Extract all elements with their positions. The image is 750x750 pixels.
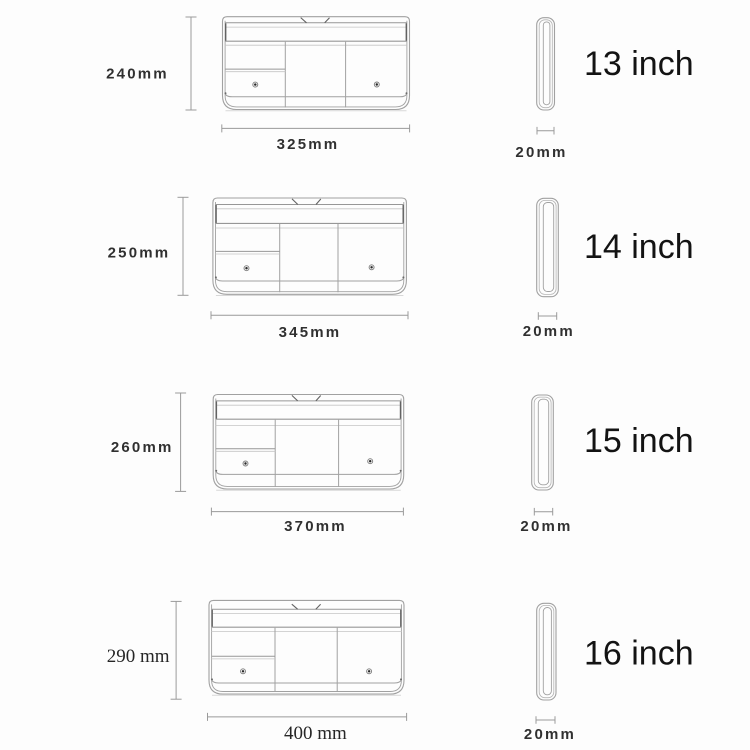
- svg-text:15 inch: 15 inch: [584, 422, 694, 460]
- svg-text:16 inch: 16 inch: [584, 635, 694, 673]
- svg-text:20mm: 20mm: [520, 518, 572, 535]
- svg-text:13 inch: 13 inch: [584, 45, 694, 83]
- svg-text:14 inch: 14 inch: [584, 228, 694, 266]
- svg-text:400 mm: 400 mm: [284, 723, 347, 744]
- svg-text:345mm: 345mm: [279, 324, 342, 341]
- svg-text:240mm: 240mm: [106, 66, 169, 83]
- svg-text:250mm: 250mm: [108, 245, 171, 262]
- svg-text:20mm: 20mm: [524, 726, 576, 743]
- svg-text:20mm: 20mm: [515, 144, 567, 161]
- svg-text:325mm: 325mm: [277, 136, 340, 153]
- svg-text:290 mm: 290 mm: [107, 646, 170, 667]
- svg-text:260mm: 260mm: [111, 439, 174, 456]
- svg-text:370mm: 370mm: [284, 518, 347, 535]
- svg-text:20mm: 20mm: [523, 323, 575, 340]
